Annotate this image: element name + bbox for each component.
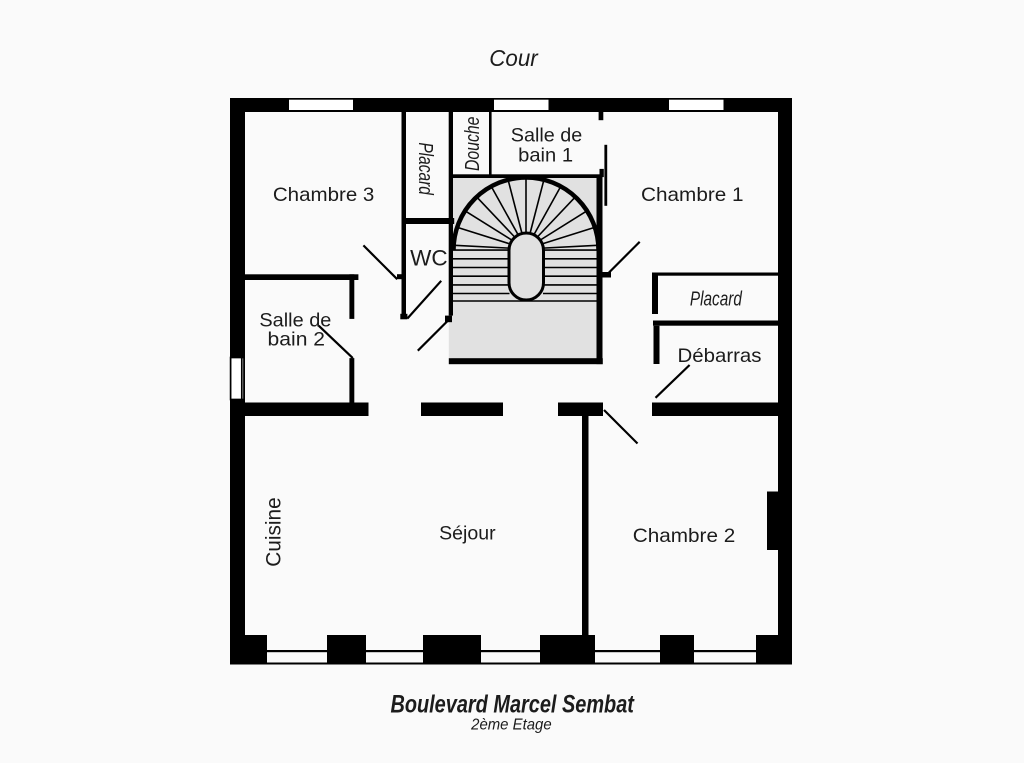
svg-text:WC: WC: [410, 246, 448, 271]
svg-text:Chambre 2: Chambre 2: [633, 525, 736, 547]
svg-text:bain 1: bain 1: [518, 144, 573, 166]
svg-text:Boulevard Marcel Sembat: Boulevard Marcel Sembat: [390, 691, 635, 719]
svg-text:2ème Etage: 2ème Etage: [470, 717, 552, 734]
svg-text:Salle de: Salle de: [511, 124, 583, 146]
svg-text:Débarras: Débarras: [678, 345, 762, 367]
svg-text:bain 2: bain 2: [268, 328, 326, 350]
svg-text:Chambre 1: Chambre 1: [641, 184, 744, 206]
svg-text:Séjour: Séjour: [439, 523, 496, 545]
svg-text:Douche: Douche: [462, 117, 484, 172]
svg-text:Placard: Placard: [690, 288, 743, 310]
svg-text:Cour: Cour: [489, 45, 539, 71]
svg-text:Cuisine: Cuisine: [263, 497, 286, 567]
svg-text:Placard: Placard: [414, 142, 436, 195]
svg-text:Chambre 3: Chambre 3: [273, 184, 375, 206]
